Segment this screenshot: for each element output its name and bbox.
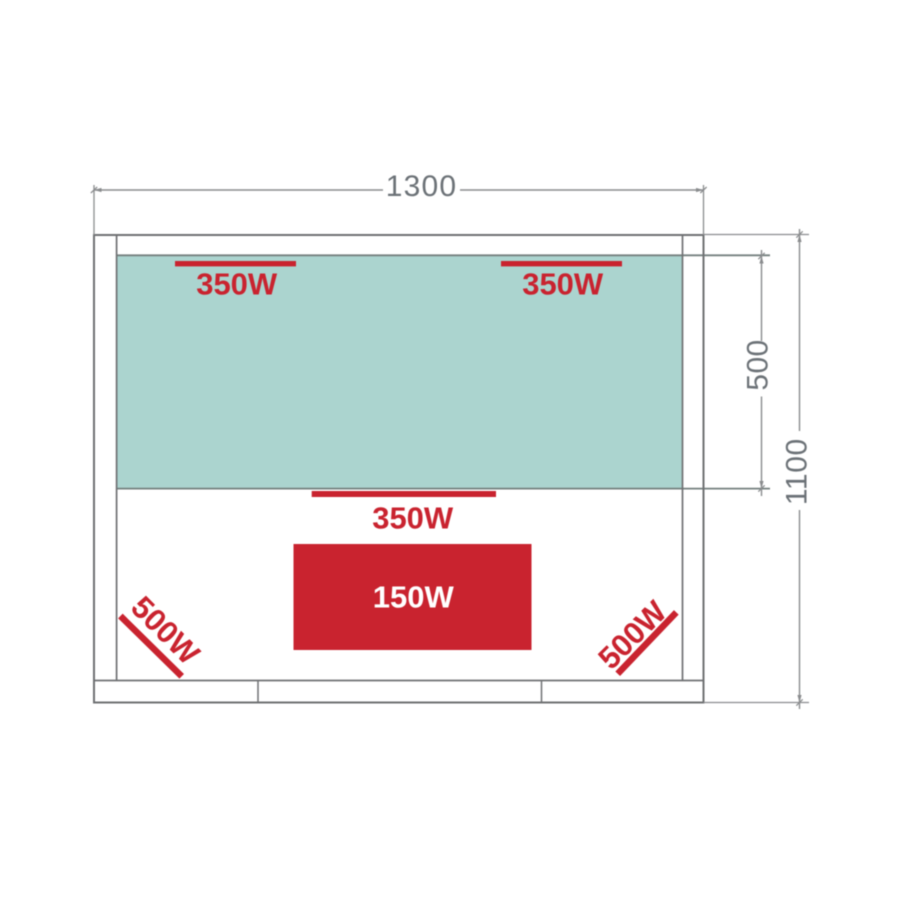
- svg-text:350W: 350W: [196, 267, 278, 302]
- svg-text:500W: 500W: [591, 593, 674, 676]
- svg-text:350W: 350W: [372, 501, 454, 536]
- svg-text:500: 500: [742, 339, 775, 390]
- svg-text:1100: 1100: [781, 438, 814, 505]
- svg-text:350W: 350W: [522, 267, 604, 302]
- svg-text:150W: 150W: [373, 580, 455, 615]
- svg-text:1300: 1300: [386, 170, 458, 203]
